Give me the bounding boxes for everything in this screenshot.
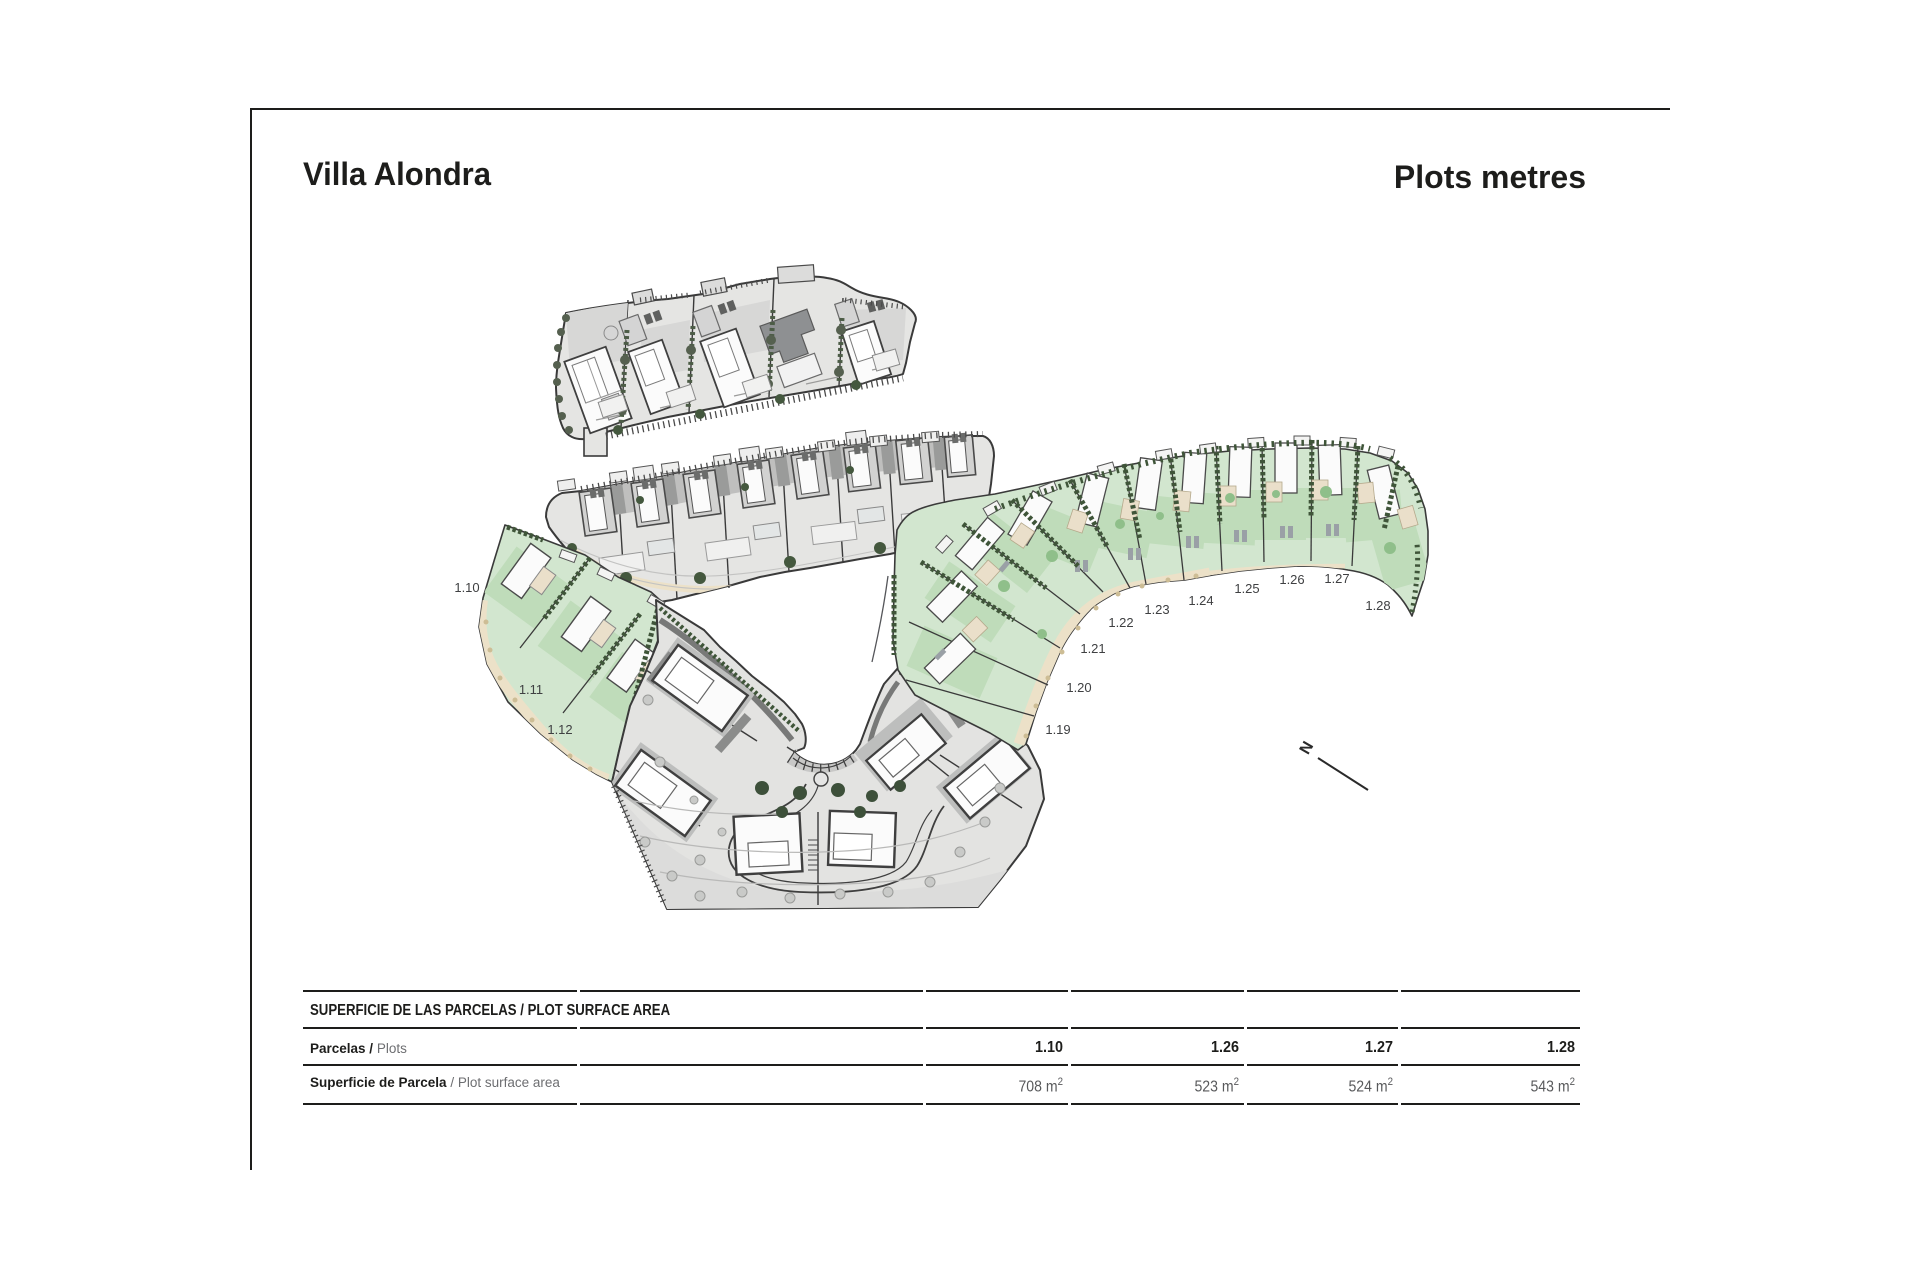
- svg-text:1.24: 1.24: [1188, 593, 1213, 608]
- svg-text:1.21: 1.21: [1080, 641, 1105, 656]
- svg-text:1.26: 1.26: [1279, 572, 1304, 587]
- svg-text:1.19: 1.19: [1045, 722, 1070, 737]
- svg-text:1.22: 1.22: [1108, 615, 1133, 630]
- svg-text:N: N: [1295, 738, 1316, 757]
- svg-text:1.20: 1.20: [1066, 680, 1091, 695]
- svg-text:1.11: 1.11: [519, 682, 543, 697]
- svg-text:1.25: 1.25: [1234, 581, 1259, 596]
- svg-text:1.27: 1.27: [1324, 571, 1349, 586]
- svg-text:1.23: 1.23: [1144, 602, 1169, 617]
- svg-text:1.10: 1.10: [454, 580, 479, 595]
- svg-text:1.12: 1.12: [547, 722, 572, 737]
- svg-text:1.28: 1.28: [1365, 598, 1390, 613]
